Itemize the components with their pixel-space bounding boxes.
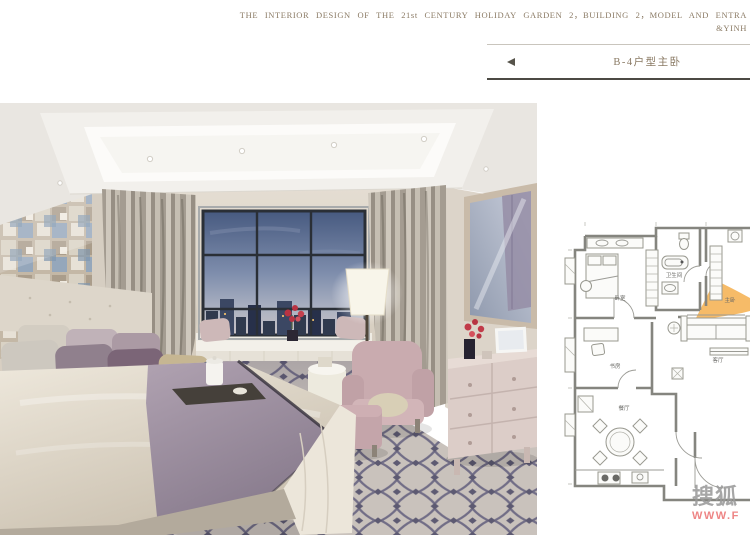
watermark-url: WWW.F [692, 511, 740, 522]
room-label-dining: 餐厅 [618, 404, 630, 412]
plan-dining [578, 396, 647, 465]
wall-mirror [464, 183, 537, 329]
balconies [565, 258, 575, 436]
page-title: B-4户型主卧 [515, 54, 750, 69]
header-line-1: THE INTERIOR DESIGN OF THE 21st CENTURY … [240, 9, 747, 22]
watermark: 搜狐 WWW.F [692, 486, 740, 522]
room-label-bathroom: 卫生间 [666, 271, 683, 279]
room-label-bedroom: 卧室 [614, 294, 626, 302]
bedroom-rendering [0, 103, 537, 535]
room-label-master-bedroom: 主卧 [724, 296, 736, 304]
presentation-page: THE INTERIOR DESIGN OF THE 21st CENTURY … [0, 0, 750, 560]
floor-plan: 卧室 卫生间 主卧 书房 餐厅 客厅 [560, 218, 750, 514]
plan-study [584, 328, 618, 356]
floor-plan-drawing: 卧室 卫生间 主卧 书房 餐厅 客厅 [560, 218, 750, 514]
room-label-living: 客厅 [712, 356, 724, 364]
header-line-2: &YINH [240, 22, 747, 35]
photo-frame [496, 328, 525, 351]
plan-sofa [668, 316, 750, 379]
plan-kitchen [575, 470, 664, 484]
room-label-study: 书房 [609, 362, 621, 370]
watermark-brand: 搜狐 [692, 486, 740, 508]
bedroom-scene [0, 103, 537, 535]
page-header: THE INTERIOR DESIGN OF THE 21st CENTURY … [240, 9, 747, 35]
back-arrow-icon[interactable] [507, 58, 515, 66]
title-bar: B-4户型主卧 [487, 44, 750, 80]
